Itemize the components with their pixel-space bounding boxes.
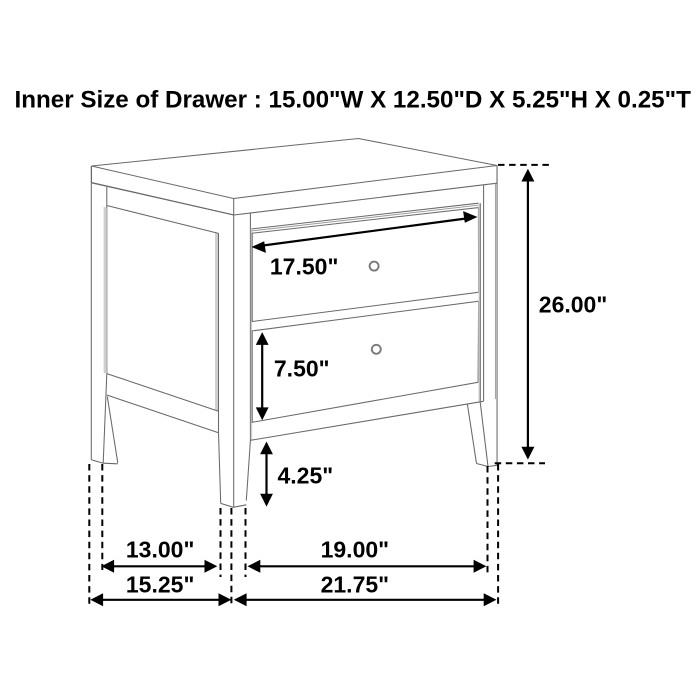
svg-text:15.25": 15.25" [126, 571, 194, 597]
svg-text:21.75": 21.75" [321, 571, 389, 597]
svg-text:26.00": 26.00" [539, 291, 607, 317]
svg-text:Inner Size of Drawer : 15.00"W: Inner Size of Drawer : 15.00"W X 12.50"D… [15, 86, 692, 113]
svg-text:7.50": 7.50" [274, 356, 330, 382]
svg-text:17.50": 17.50" [270, 253, 338, 279]
svg-text:19.00": 19.00" [321, 536, 389, 562]
svg-text:4.25": 4.25" [278, 462, 334, 488]
svg-text:13.00": 13.00" [126, 536, 194, 562]
